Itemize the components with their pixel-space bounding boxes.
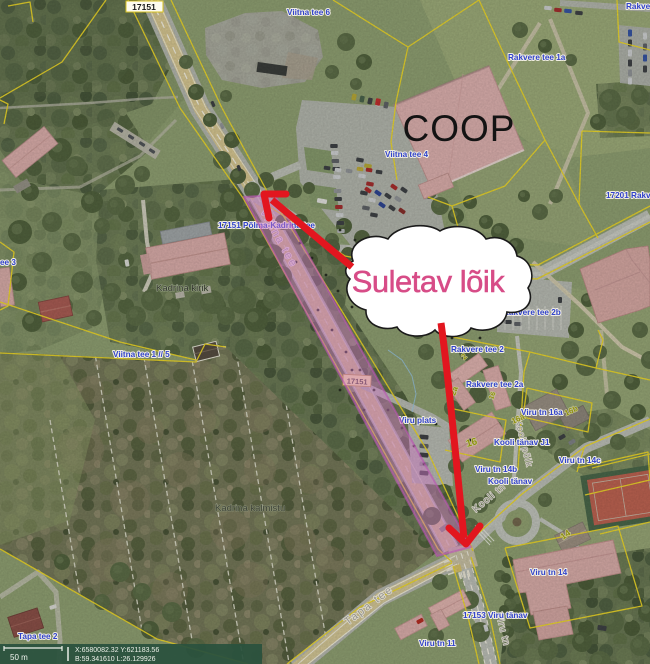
svg-text:17153 Viru tänav: 17153 Viru tänav xyxy=(463,611,528,620)
svg-text:Viru tn 14: Viru tn 14 xyxy=(530,568,568,577)
svg-text:Rakvere tee: Rakvere tee xyxy=(626,2,650,11)
svg-text:Viru plats: Viru plats xyxy=(399,416,437,425)
svg-text:Viitna tee 6: Viitna tee 6 xyxy=(287,8,331,17)
svg-text:Kadrina kirik: Kadrina kirik xyxy=(156,283,209,294)
svg-text:Tapa tee 2: Tapa tee 2 xyxy=(18,632,58,641)
svg-text:COOP: COOP xyxy=(403,108,516,149)
svg-text:Rakvere tee 1a: Rakvere tee 1a xyxy=(508,53,566,62)
svg-text:17151: 17151 xyxy=(132,2,156,12)
svg-text:Suletav lõik: Suletav lõik xyxy=(352,264,506,299)
svg-text:Viru tn 11: Viru tn 11 xyxy=(419,639,456,648)
svg-text:B:59.341610 L:26.129926: B:59.341610 L:26.129926 xyxy=(75,656,156,663)
svg-text:Viitna tee 4: Viitna tee 4 xyxy=(385,150,429,159)
svg-text:Rakvere tee 2a: Rakvere tee 2a xyxy=(466,380,524,389)
svg-text:Viru tn 14b: Viru tn 14b xyxy=(475,465,517,474)
svg-text:50 m: 50 m xyxy=(10,653,28,662)
svg-text:17201 Rakvere: 17201 Rakvere xyxy=(606,191,650,200)
svg-text:Rakvere tee 2: Rakvere tee 2 xyxy=(451,345,504,354)
svg-text:Kooli tänav: Kooli tänav xyxy=(488,477,533,486)
svg-text:X:6580082.32 Y:621183.56: X:6580082.32 Y:621183.56 xyxy=(75,647,159,654)
svg-text:Viru tn 16a: Viru tn 16a xyxy=(521,408,563,417)
svg-text:ee 3: ee 3 xyxy=(0,258,16,267)
svg-text:Kadrina kalmistu: Kadrina kalmistu xyxy=(215,503,285,514)
svg-text:Kooli tänav J1: Kooli tänav J1 xyxy=(494,438,550,447)
svg-text:Viru tn 14c: Viru tn 14c xyxy=(559,456,601,465)
svg-text:Viitna tee 1 // 5: Viitna tee 1 // 5 xyxy=(113,350,170,359)
